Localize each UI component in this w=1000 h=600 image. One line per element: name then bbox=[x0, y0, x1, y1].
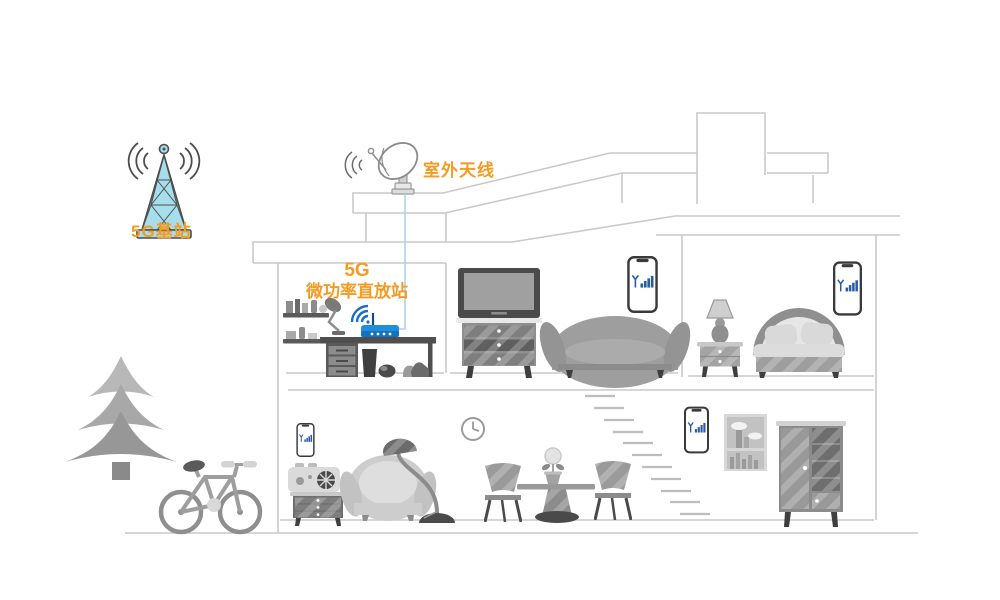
dining-chair bbox=[595, 461, 631, 520]
repeater-label-line1: 5G bbox=[344, 260, 369, 281]
tv bbox=[458, 268, 540, 318]
wifi-waves-icon bbox=[352, 306, 370, 324]
base-station-label: 5G基站 bbox=[131, 221, 192, 241]
illustration-canvas: 5G基站 室外天线 5G 微功率直放站 bbox=[0, 0, 1000, 600]
flower bbox=[545, 448, 561, 464]
wall-art bbox=[724, 414, 767, 471]
shoes bbox=[403, 362, 429, 377]
flower-pot bbox=[546, 475, 561, 485]
pine-tree bbox=[65, 356, 177, 480]
radio-cabinet bbox=[290, 492, 346, 526]
bicycle bbox=[161, 459, 260, 532]
ball bbox=[379, 365, 396, 378]
bed bbox=[753, 308, 845, 378]
5g-home-coverage-diagram: 5G基站 室外天线 5G 微功率直放站 bbox=[0, 0, 1000, 600]
wall-clock-icon bbox=[462, 418, 484, 440]
nightstand bbox=[697, 300, 743, 377]
smartphone-signal-icon bbox=[297, 424, 314, 457]
repeater-label-line2: 微功率直放站 bbox=[305, 281, 408, 301]
wardrobe bbox=[776, 421, 846, 527]
armchair bbox=[336, 455, 441, 521]
wall-shelves bbox=[283, 299, 329, 344]
dining-chair bbox=[485, 463, 521, 522]
tv-stand-dresser bbox=[456, 318, 542, 378]
table-lamp bbox=[707, 300, 733, 318]
antenna-cable bbox=[398, 194, 405, 329]
radio bbox=[288, 463, 340, 492]
smartphone-signal-icon bbox=[628, 257, 656, 312]
smartphone-signal-icon bbox=[685, 408, 708, 453]
satellite-dish-icon bbox=[345, 135, 424, 194]
smartphone-signal-icon bbox=[834, 263, 861, 315]
desk bbox=[320, 337, 436, 378]
trash-can bbox=[362, 349, 377, 377]
pedestal-table bbox=[517, 448, 595, 523]
chimney bbox=[697, 113, 765, 204]
sofa bbox=[535, 316, 696, 388]
outdoor-antenna-label: 室外天线 bbox=[423, 160, 495, 180]
